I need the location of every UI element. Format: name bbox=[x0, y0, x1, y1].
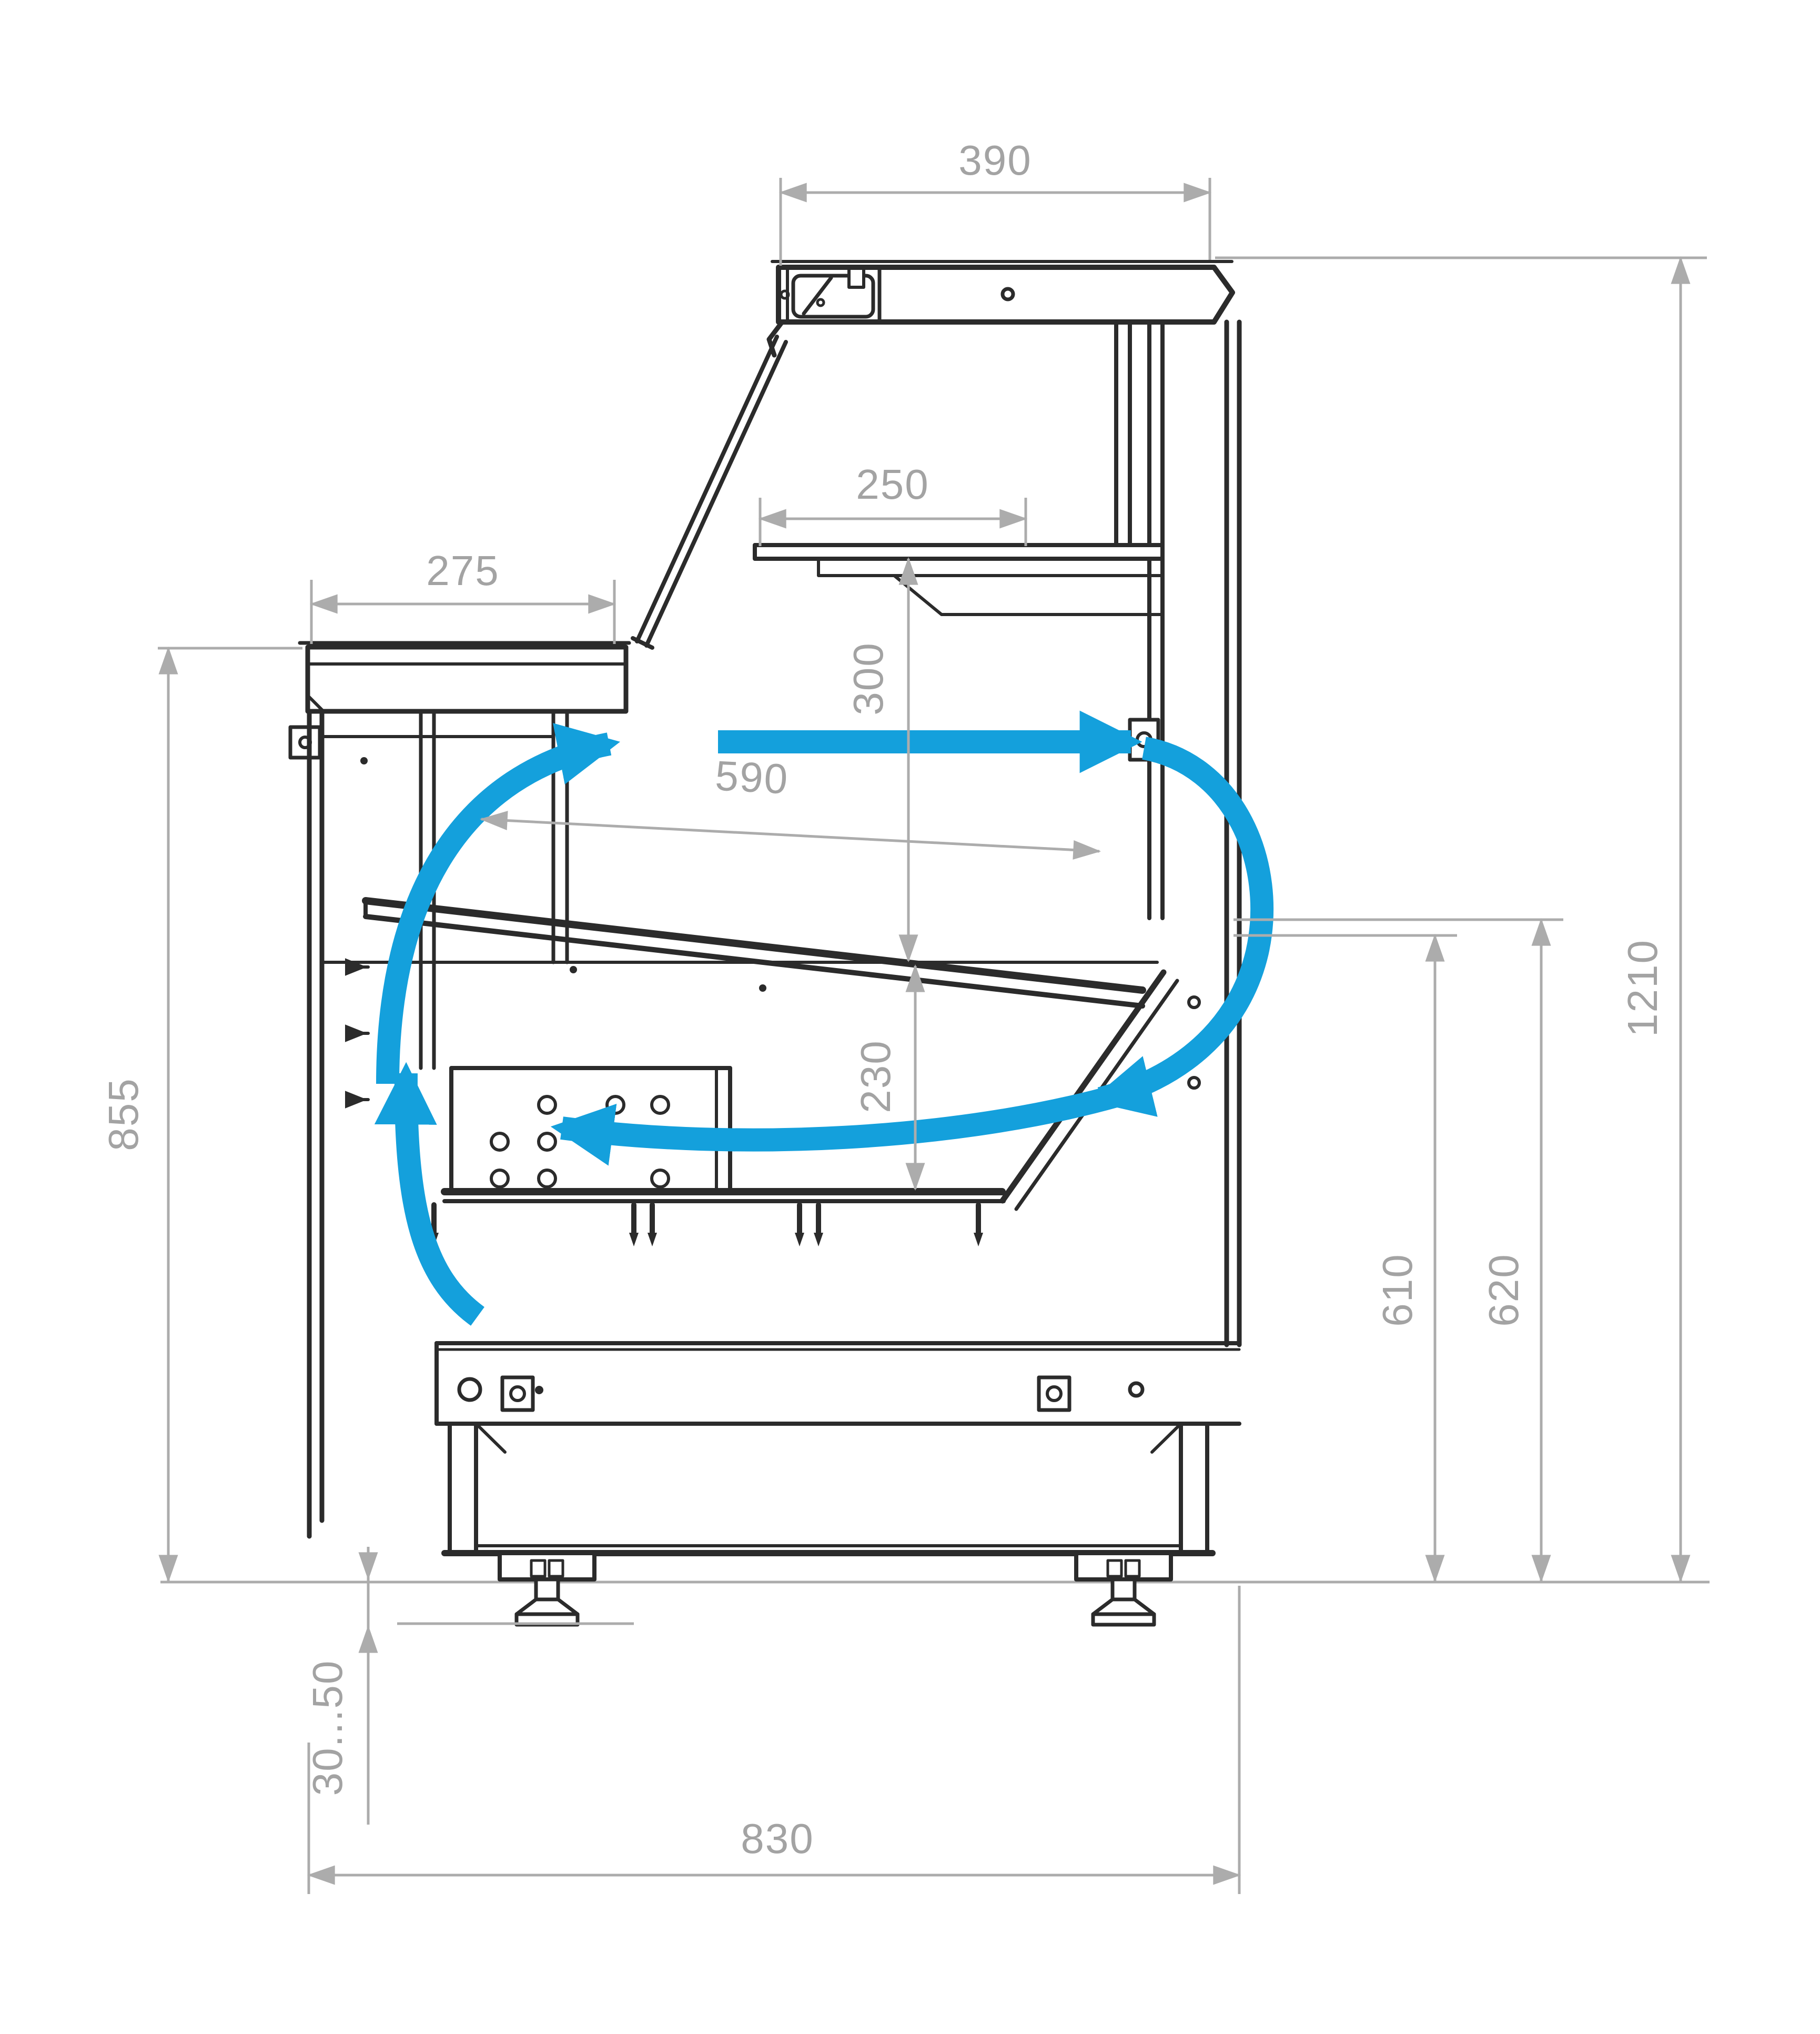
drain-pins bbox=[429, 1205, 983, 1246]
display-deck bbox=[322, 901, 1157, 1006]
adjustable-foot-left bbox=[500, 1553, 594, 1625]
dim-label-250: 250 bbox=[856, 461, 929, 508]
dim-counter-height: 855 bbox=[100, 648, 302, 1581]
dim-rear-height-outer: 620 bbox=[1233, 920, 1563, 1581]
airflow-arrows bbox=[388, 742, 1262, 1316]
dim-label-830: 830 bbox=[741, 1815, 814, 1862]
dim-label-590: 590 bbox=[714, 752, 790, 802]
dimension-annotations: 390 250 275 590 300 230 855 bbox=[100, 137, 1707, 1894]
dim-rear-height-inner: 610 bbox=[1233, 935, 1457, 1581]
case-structure bbox=[290, 261, 1239, 1625]
base-frame bbox=[437, 1343, 1239, 1424]
dim-counter-depth: 275 bbox=[311, 547, 614, 644]
pedestal bbox=[444, 1424, 1212, 1553]
front-glass bbox=[633, 337, 786, 648]
adjustable-foot-right bbox=[1076, 1553, 1171, 1625]
dim-label-30-50: 30...50 bbox=[304, 1660, 351, 1796]
display-shelf bbox=[755, 545, 1162, 615]
dim-label-390: 390 bbox=[958, 137, 1032, 184]
dim-label-855: 855 bbox=[100, 1078, 147, 1151]
dim-label-610: 610 bbox=[1374, 1253, 1421, 1326]
dim-label-620: 620 bbox=[1480, 1253, 1527, 1326]
dim-base-depth: 830 bbox=[309, 1586, 1239, 1894]
dim-shelf-width: 250 bbox=[760, 461, 1026, 546]
dim-shelf-clearance: 300 bbox=[845, 559, 908, 961]
dim-leg-adjust-range: 30...50 bbox=[304, 1547, 634, 1825]
dim-label-275: 275 bbox=[426, 547, 499, 594]
dim-label-300: 300 bbox=[845, 642, 892, 715]
dim-display-opening: 590 bbox=[481, 752, 1099, 851]
rear-posts bbox=[1116, 322, 1239, 1345]
dim-label-230: 230 bbox=[852, 1040, 899, 1113]
dim-canopy-width: 390 bbox=[781, 137, 1210, 266]
dim-label-1210: 1210 bbox=[1619, 939, 1666, 1037]
dim-well-depth: 230 bbox=[852, 966, 915, 1189]
technical-drawing-display-case-section: 390 250 275 590 300 230 855 bbox=[0, 0, 1820, 2034]
vent-arrows bbox=[347, 967, 368, 1100]
